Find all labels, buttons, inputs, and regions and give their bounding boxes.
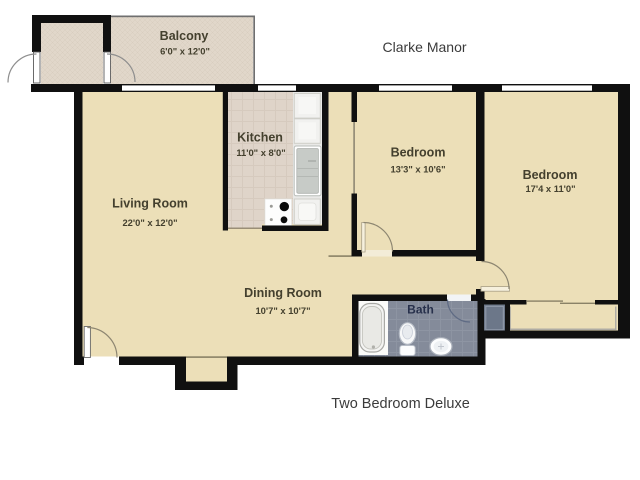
svg-text:Bath: Bath xyxy=(407,303,434,317)
svg-text:Dining Room: Dining Room xyxy=(244,286,322,300)
svg-text:Kitchen: Kitchen xyxy=(237,131,283,145)
svg-text:Balcony: Balcony xyxy=(160,29,209,43)
svg-text:17'4 x 11'0": 17'4 x 11'0" xyxy=(525,183,575,194)
svg-text:Two Bedroom Deluxe: Two Bedroom Deluxe xyxy=(331,396,470,412)
svg-text:Bedroom: Bedroom xyxy=(523,168,578,182)
svg-text:Clarke Manor: Clarke Manor xyxy=(382,39,466,55)
svg-text:Bedroom: Bedroom xyxy=(391,146,446,160)
svg-text:Living Room: Living Room xyxy=(112,197,188,211)
svg-text:10'7" x 10'7": 10'7" x 10'7" xyxy=(255,305,310,316)
svg-text:22'0" x 12'0": 22'0" x 12'0" xyxy=(122,217,177,228)
svg-text:6'0" x 12'0": 6'0" x 12'0" xyxy=(160,46,210,57)
svg-text:11'0" x 8'0": 11'0" x 8'0" xyxy=(236,147,285,158)
svg-text:13'3" x 10'6": 13'3" x 10'6" xyxy=(390,164,445,175)
